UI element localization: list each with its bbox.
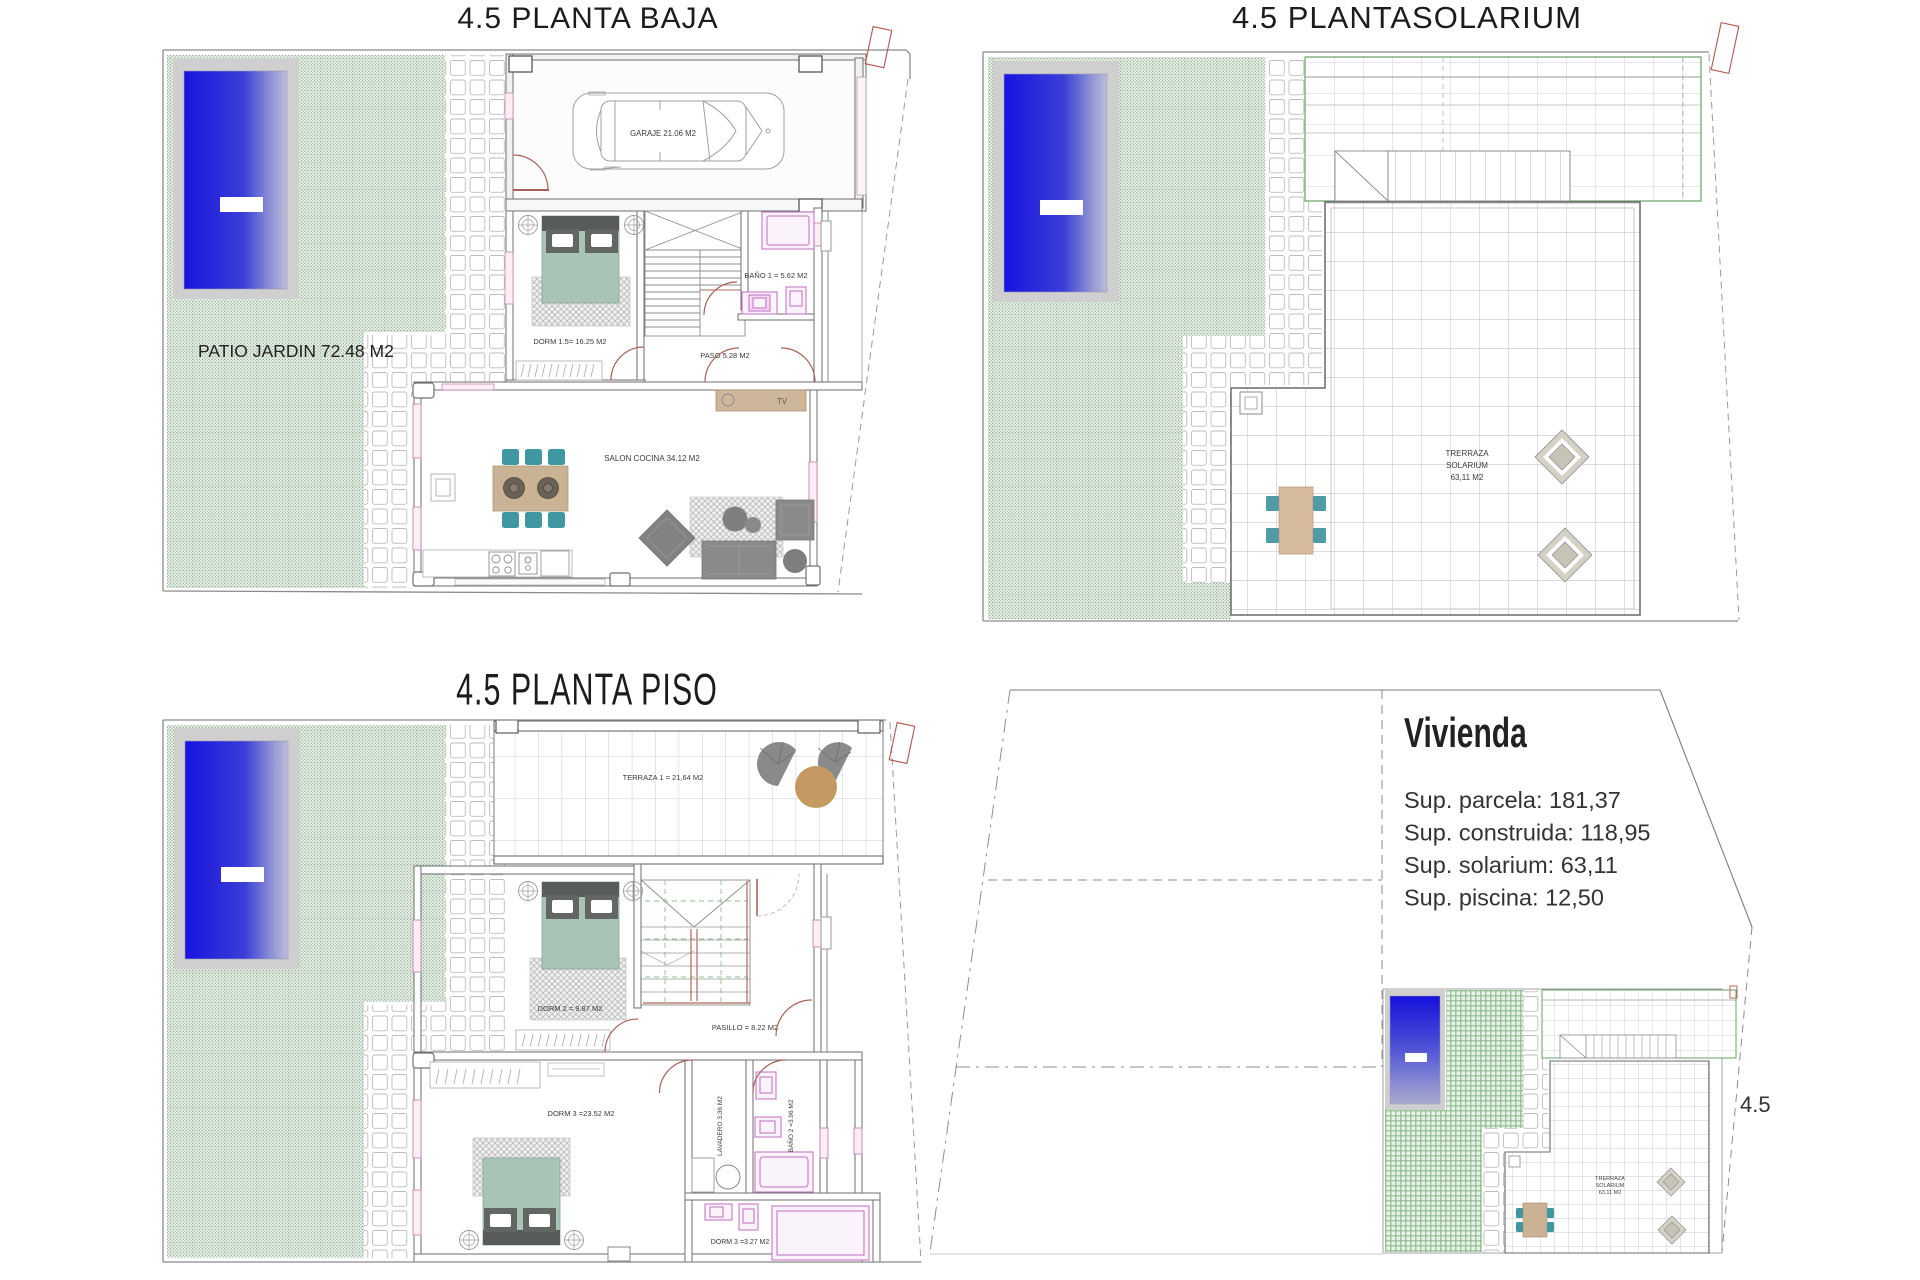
svg-text:4.5: 4.5 bbox=[1740, 1092, 1771, 1117]
svg-text:DORM 2 = 9.87 M2: DORM 2 = 9.87 M2 bbox=[538, 1004, 603, 1013]
svg-text:SALON COCINA 34.12 M2: SALON COCINA 34.12 M2 bbox=[604, 454, 700, 463]
svg-text:Vivienda: Vivienda bbox=[1404, 709, 1527, 756]
svg-text:SOLARIUM: SOLARIUM bbox=[1596, 1183, 1625, 1189]
svg-text:4.5 PLANTA PISO: 4.5 PLANTA PISO bbox=[456, 666, 718, 715]
svg-text:BAÑO 2 =3.96 M2: BAÑO 2 =3.96 M2 bbox=[786, 1099, 795, 1152]
svg-text:4.5 PLANTA BAJA: 4.5 PLANTA BAJA bbox=[457, 2, 718, 35]
svg-text:Sup. parcela: 181,37: Sup. parcela: 181,37 bbox=[1404, 787, 1621, 813]
svg-text:PASILLO = 8.22 M2: PASILLO = 8.22 M2 bbox=[712, 1023, 778, 1032]
svg-text:DORM 3 =23.52 M2: DORM 3 =23.52 M2 bbox=[548, 1109, 615, 1118]
svg-text:LAVADERO 3.36 M2: LAVADERO 3.36 M2 bbox=[717, 1096, 724, 1156]
svg-text:TRERRAZA: TRERRAZA bbox=[1595, 1176, 1625, 1182]
svg-text:63,11 M2: 63,11 M2 bbox=[1451, 473, 1484, 482]
svg-text:PASO 5.28 M2: PASO 5.28 M2 bbox=[700, 351, 749, 360]
svg-text:TERRAZA 1 = 21,64 M2: TERRAZA 1 = 21,64 M2 bbox=[623, 773, 704, 782]
svg-text:BAÑO 1 = 5.62 M2: BAÑO 1 = 5.62 M2 bbox=[744, 271, 807, 280]
svg-text:Sup. piscina: 12,50: Sup. piscina: 12,50 bbox=[1404, 885, 1604, 911]
svg-text:4.5 PLANTASOLARIUM: 4.5 PLANTASOLARIUM bbox=[1232, 0, 1582, 35]
svg-text:TRERRAZA: TRERRAZA bbox=[1445, 449, 1489, 458]
svg-text:GARAJE 21.06 M2: GARAJE 21.06 M2 bbox=[630, 129, 696, 138]
svg-text:Sup. solarium: 63,11: Sup. solarium: 63,11 bbox=[1404, 852, 1618, 878]
svg-text:DORM 1.5= 16.25 M2: DORM 1.5= 16.25 M2 bbox=[533, 337, 606, 346]
svg-text:TV: TV bbox=[777, 397, 788, 406]
svg-text:PATIO JARDIN 72.48 M2: PATIO JARDIN 72.48 M2 bbox=[198, 341, 394, 361]
svg-text:Sup. construida: 118,95: Sup. construida: 118,95 bbox=[1404, 820, 1651, 846]
svg-text:DORM 3 =3.27 M2: DORM 3 =3.27 M2 bbox=[711, 1239, 770, 1246]
svg-text:63,11 M2: 63,11 M2 bbox=[1599, 1190, 1622, 1196]
svg-text:SOLARIUM: SOLARIUM bbox=[1446, 461, 1488, 470]
